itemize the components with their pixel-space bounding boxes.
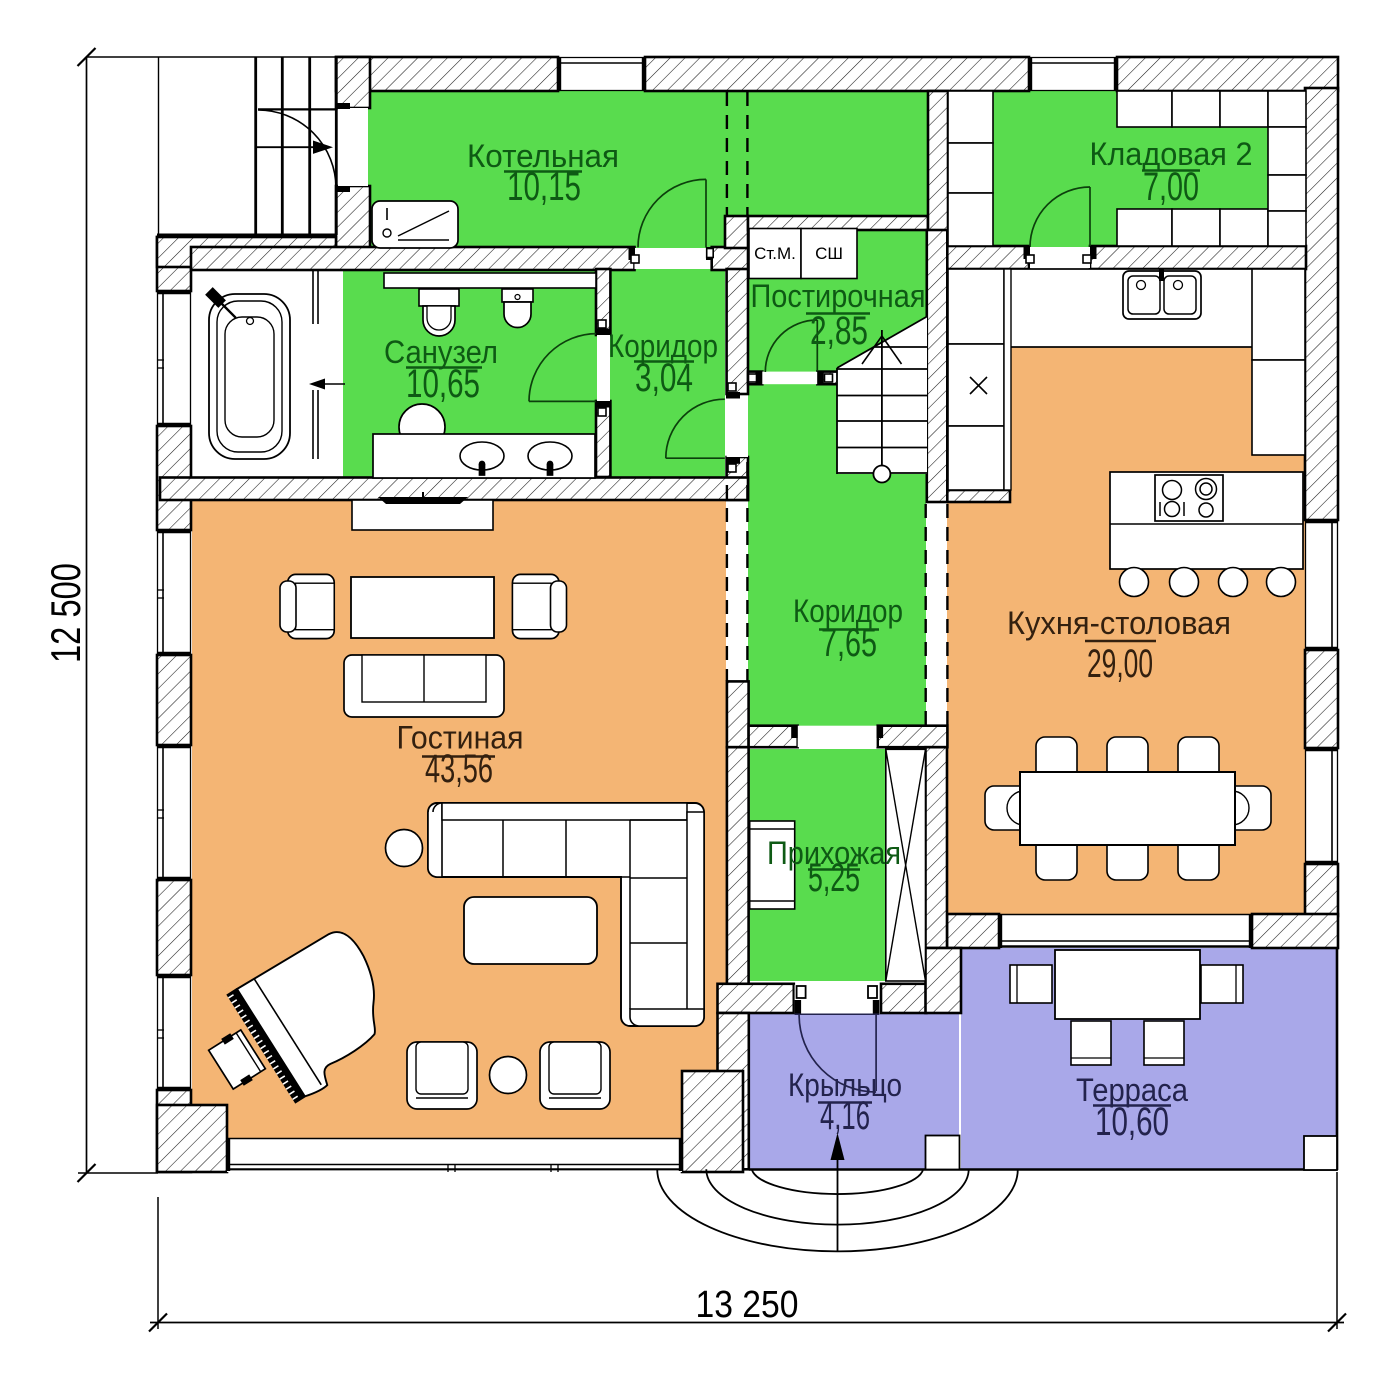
svg-text:4,16: 4,16 [820,1094,870,1138]
svg-text:5,25: 5,25 [808,856,860,900]
svg-text:СШ: СШ [815,244,843,263]
svg-text:10,60: 10,60 [1095,1100,1169,1144]
svg-text:7,65: 7,65 [821,621,877,665]
svg-text:13 250: 13 250 [696,1284,799,1326]
svg-text:10,15: 10,15 [507,165,581,209]
svg-text:3,04: 3,04 [635,356,693,400]
svg-text:7,00: 7,00 [1143,165,1199,209]
svg-text:Кухня-столовая: Кухня-столовая [1007,605,1231,641]
svg-text:Ст.М.: Ст.М. [754,244,796,263]
svg-text:29,00: 29,00 [1087,642,1153,686]
svg-text:43,56: 43,56 [425,747,493,791]
svg-text:2,85: 2,85 [810,309,868,353]
svg-text:12 500: 12 500 [42,563,89,663]
svg-text:10,65: 10,65 [406,362,480,406]
